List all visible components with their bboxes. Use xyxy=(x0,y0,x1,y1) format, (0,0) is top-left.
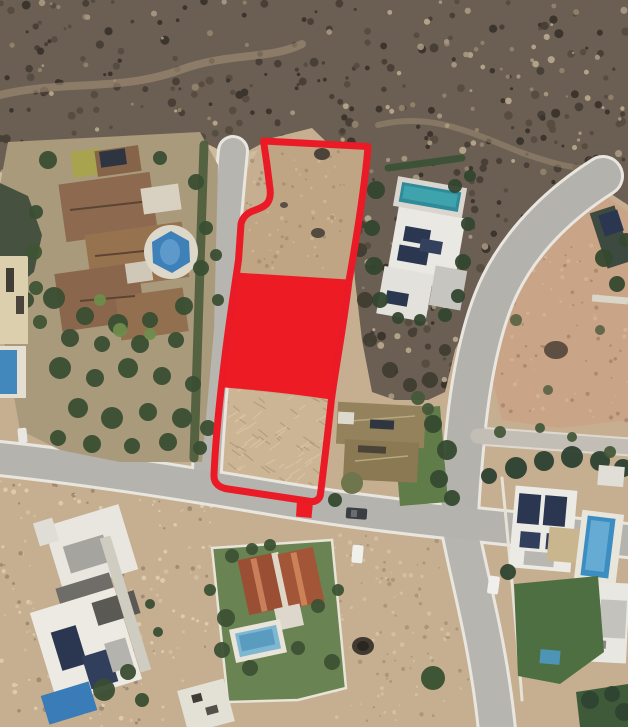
speckle xyxy=(511,126,514,129)
speckle xyxy=(77,107,84,114)
speckle xyxy=(585,360,587,362)
speckle xyxy=(204,510,206,512)
speckle xyxy=(597,30,603,36)
speckle xyxy=(175,565,179,569)
speckle xyxy=(590,279,593,282)
speckle xyxy=(544,34,550,40)
speckle xyxy=(522,323,524,325)
speckle xyxy=(418,587,421,590)
speckle xyxy=(74,494,76,496)
speckle xyxy=(572,52,574,54)
speckle xyxy=(205,575,208,578)
speckle xyxy=(27,73,35,81)
speckle xyxy=(619,350,621,352)
speckle xyxy=(593,316,597,320)
speckle xyxy=(500,68,503,71)
speckle xyxy=(161,37,164,40)
speckle xyxy=(337,99,343,105)
speckle xyxy=(93,107,99,113)
speckle xyxy=(172,56,177,61)
tree xyxy=(76,307,94,325)
speckle xyxy=(281,201,283,203)
speckle xyxy=(464,142,470,148)
speckle xyxy=(570,398,574,402)
speckle xyxy=(427,140,432,145)
speckle xyxy=(326,29,332,35)
speckle xyxy=(257,259,261,263)
speckle xyxy=(206,77,214,85)
speckle xyxy=(207,30,213,36)
speckle xyxy=(596,337,600,341)
speckle xyxy=(48,39,52,43)
speckle xyxy=(38,68,42,72)
speckle xyxy=(11,489,16,494)
speckle xyxy=(285,236,289,240)
speckle xyxy=(424,625,429,630)
speckle xyxy=(324,175,327,178)
speckle xyxy=(405,318,413,326)
tree xyxy=(113,323,127,337)
speckle xyxy=(435,539,440,544)
speckle xyxy=(458,669,462,673)
tree xyxy=(217,609,235,627)
speckle xyxy=(377,695,380,698)
speckle xyxy=(339,600,342,603)
speckle xyxy=(177,108,181,112)
speckle xyxy=(429,656,432,659)
speckle xyxy=(467,678,469,680)
speckle xyxy=(44,42,48,46)
speckle xyxy=(2,569,6,573)
speckle xyxy=(476,176,483,183)
speckle xyxy=(29,601,33,605)
speckle xyxy=(532,61,539,68)
speckle xyxy=(150,641,153,644)
plot-dark-spot-1 xyxy=(314,148,330,160)
speckle xyxy=(542,283,544,285)
tree xyxy=(214,642,230,658)
speckle xyxy=(275,120,281,126)
speckle xyxy=(489,25,497,33)
speckle xyxy=(442,377,447,382)
speckle xyxy=(480,65,485,70)
tree xyxy=(204,584,216,596)
speckle xyxy=(379,715,381,717)
speckle xyxy=(191,617,194,620)
speckle xyxy=(252,151,255,154)
speckle xyxy=(337,150,340,153)
tree xyxy=(210,249,222,261)
speckle xyxy=(372,328,375,331)
speckle xyxy=(427,653,429,655)
speckle xyxy=(411,656,413,658)
speckle xyxy=(585,392,589,396)
speckle xyxy=(329,94,334,99)
speckle xyxy=(314,246,317,249)
speckle xyxy=(566,259,570,263)
speckle xyxy=(330,215,334,219)
speckle xyxy=(582,143,588,149)
speckle xyxy=(524,162,530,168)
speckle xyxy=(406,347,412,353)
speckle xyxy=(377,342,384,349)
speckle xyxy=(444,39,449,44)
speckle xyxy=(152,504,154,506)
speckle xyxy=(584,277,588,281)
speckle xyxy=(29,565,31,567)
solar-panels xyxy=(543,495,568,527)
speckle xyxy=(449,13,455,19)
speckle xyxy=(530,87,534,91)
speckle xyxy=(153,500,156,503)
speckle xyxy=(164,569,169,574)
speckle xyxy=(385,673,389,677)
speckle xyxy=(315,10,318,13)
speckle xyxy=(27,108,31,112)
speckle xyxy=(204,646,206,648)
speckle xyxy=(402,84,406,88)
speckle xyxy=(4,564,6,566)
speckle xyxy=(510,335,513,338)
speckle xyxy=(310,237,313,240)
speckle xyxy=(603,75,608,80)
tree xyxy=(68,398,88,418)
speckle xyxy=(4,75,9,80)
speckle xyxy=(416,685,419,688)
tree xyxy=(439,344,451,356)
speckle xyxy=(323,200,327,204)
speckle xyxy=(500,98,505,103)
speckle xyxy=(180,510,182,512)
speckle xyxy=(585,95,591,101)
tree xyxy=(246,543,258,555)
speckle xyxy=(83,62,88,67)
speckle xyxy=(207,117,211,121)
speckle xyxy=(551,109,560,118)
speckle xyxy=(172,78,180,86)
speckle xyxy=(151,11,157,17)
speckle xyxy=(377,332,386,341)
speckle xyxy=(480,41,484,45)
speckle xyxy=(386,678,388,680)
speckle xyxy=(611,377,613,379)
speckle xyxy=(99,713,101,715)
speckle xyxy=(457,84,465,92)
speckle xyxy=(622,158,626,162)
speckle xyxy=(620,106,624,110)
speckle xyxy=(263,258,265,260)
speckle xyxy=(567,335,571,339)
speckle xyxy=(50,2,53,5)
speckle xyxy=(7,7,14,14)
speckle xyxy=(245,43,249,47)
speckle xyxy=(26,30,29,33)
tree xyxy=(144,328,156,340)
speckle xyxy=(310,58,319,67)
speckle xyxy=(348,540,352,544)
dirt-hole-bottom-lot-inner xyxy=(357,641,369,651)
plot-dark-spot-3 xyxy=(280,202,288,208)
speckle xyxy=(33,633,36,636)
speckle xyxy=(161,718,164,721)
speckle xyxy=(443,357,446,360)
speckle xyxy=(174,109,177,112)
speckle xyxy=(444,621,448,625)
tree xyxy=(291,641,305,655)
speckle xyxy=(298,225,301,228)
speckle xyxy=(17,600,21,604)
jacuzzi-se xyxy=(539,649,560,665)
speckle xyxy=(394,660,396,662)
speckle xyxy=(101,704,104,707)
speckle xyxy=(615,150,622,157)
speckle xyxy=(391,578,395,582)
speckle xyxy=(561,145,564,148)
speckle xyxy=(394,333,400,339)
speckle xyxy=(471,199,475,203)
speckle xyxy=(68,112,76,120)
speckle xyxy=(559,68,564,73)
speckle xyxy=(181,614,185,618)
speckle xyxy=(34,638,36,640)
tree xyxy=(153,627,163,637)
speckle xyxy=(480,142,485,147)
speckle xyxy=(274,60,282,68)
speckle xyxy=(401,667,405,671)
speckle xyxy=(339,184,341,186)
speckle xyxy=(194,575,199,580)
speckle xyxy=(18,502,20,504)
speckle xyxy=(376,673,379,676)
speckle xyxy=(616,412,620,416)
speckle xyxy=(381,87,386,92)
speckle xyxy=(334,546,336,548)
speckle xyxy=(422,562,425,565)
speckle xyxy=(505,98,512,105)
speckle xyxy=(431,321,435,325)
speckle xyxy=(389,109,394,114)
speckle xyxy=(438,567,440,569)
speckle xyxy=(364,28,371,35)
speckle xyxy=(412,632,414,634)
speckle xyxy=(332,185,335,188)
speckle xyxy=(209,102,213,106)
speckle xyxy=(620,112,625,117)
speckle xyxy=(575,103,584,112)
speckle xyxy=(338,533,342,537)
speckle xyxy=(365,535,367,537)
tree xyxy=(311,599,325,613)
tree xyxy=(364,220,380,236)
villa-nw-terrace xyxy=(140,183,181,214)
speckle xyxy=(310,187,313,190)
speckle xyxy=(277,229,279,231)
speckle xyxy=(172,609,175,612)
speckle xyxy=(205,622,209,626)
solar-panels xyxy=(519,531,540,549)
speckle xyxy=(499,24,504,29)
speckle xyxy=(190,572,192,574)
speckle xyxy=(543,258,545,260)
speckle xyxy=(529,410,531,412)
speckle xyxy=(510,47,515,52)
speckle xyxy=(571,290,575,294)
speckle xyxy=(271,261,273,263)
speckle xyxy=(111,0,115,4)
speckle xyxy=(387,10,392,15)
speckle xyxy=(354,8,357,11)
solar-water-heater xyxy=(370,419,394,429)
speckle xyxy=(381,59,387,65)
speckle xyxy=(400,642,405,647)
speckle xyxy=(566,95,568,97)
speckle xyxy=(29,630,31,632)
speckle xyxy=(594,269,598,273)
speckle xyxy=(549,261,551,263)
speckle xyxy=(141,566,145,570)
speckle xyxy=(213,121,218,126)
speckle xyxy=(12,690,17,695)
speckle xyxy=(380,686,384,690)
speckle xyxy=(91,91,98,98)
speckle xyxy=(176,18,180,22)
speckle xyxy=(471,107,475,111)
speckle xyxy=(417,43,424,50)
plot-dark-spot-2 xyxy=(311,228,325,238)
speckle xyxy=(618,117,621,120)
speckle xyxy=(20,517,22,519)
speckle xyxy=(3,487,8,492)
tree xyxy=(534,451,554,471)
speckle xyxy=(4,614,6,616)
speckle xyxy=(379,631,382,634)
speckle xyxy=(77,499,81,503)
speckle xyxy=(253,180,256,183)
speckle xyxy=(482,243,489,250)
speckle xyxy=(443,700,445,702)
speckle xyxy=(292,241,294,243)
speckle xyxy=(526,311,529,314)
speckle xyxy=(551,4,556,9)
speckle xyxy=(315,254,318,257)
speckle xyxy=(389,680,392,683)
speckle xyxy=(468,235,472,239)
tree xyxy=(124,438,140,454)
speckle xyxy=(608,95,614,101)
speckle xyxy=(569,306,571,308)
speckle xyxy=(255,58,262,65)
speckle xyxy=(469,89,472,92)
speckle xyxy=(410,102,415,107)
speckle xyxy=(579,260,581,262)
speckle xyxy=(297,83,300,86)
speckle xyxy=(96,41,104,49)
speckle xyxy=(381,577,383,579)
round-tree-bottom-lot xyxy=(421,666,445,690)
speckle xyxy=(361,582,363,584)
speckle xyxy=(623,328,627,332)
speckle xyxy=(303,62,307,66)
speckle xyxy=(392,650,396,654)
speckle xyxy=(554,29,563,38)
speckle xyxy=(506,74,510,78)
speckle xyxy=(443,638,447,642)
speckle xyxy=(266,108,272,114)
speckle xyxy=(547,120,556,129)
speckle xyxy=(399,704,401,706)
speckle xyxy=(162,706,165,709)
plot-highlight-fill xyxy=(225,273,349,400)
speckle xyxy=(363,559,366,562)
speckle xyxy=(622,335,626,339)
speckle xyxy=(55,484,58,487)
tree xyxy=(382,362,398,378)
speckle xyxy=(212,130,219,137)
speckle xyxy=(168,98,177,107)
speckle xyxy=(382,568,386,572)
speckle xyxy=(350,563,353,566)
speckle xyxy=(609,359,613,363)
speckle xyxy=(548,56,555,63)
speckle xyxy=(542,313,546,317)
tree xyxy=(264,539,276,551)
speckle xyxy=(448,36,453,41)
speckle xyxy=(369,169,373,173)
speckle xyxy=(268,233,271,236)
speckle xyxy=(17,709,21,713)
round-tree-olive xyxy=(341,472,363,494)
speckle xyxy=(509,409,513,413)
speckle xyxy=(476,264,485,273)
speckle xyxy=(18,483,21,486)
speckle xyxy=(202,546,205,549)
speckle xyxy=(358,660,362,664)
tree xyxy=(505,457,527,479)
speckle xyxy=(415,593,419,597)
speckle xyxy=(141,576,146,581)
speckle xyxy=(153,652,156,655)
speckle xyxy=(576,325,578,327)
tree xyxy=(392,312,404,324)
speckle xyxy=(1,545,4,548)
speckle xyxy=(609,344,611,346)
speckle xyxy=(280,245,284,249)
speckle xyxy=(139,499,142,502)
tree xyxy=(424,415,442,433)
speckle xyxy=(276,250,280,254)
speckle xyxy=(585,47,588,50)
tree xyxy=(481,468,497,484)
speckle xyxy=(339,230,341,232)
speckle xyxy=(250,84,253,87)
speckle xyxy=(64,27,67,30)
speckle xyxy=(317,79,320,82)
speckle xyxy=(282,182,286,186)
swimming-pool-nw-light xyxy=(160,239,180,265)
speckle xyxy=(188,546,191,549)
speckle xyxy=(173,523,177,527)
tree xyxy=(535,423,545,433)
speckle xyxy=(394,614,396,616)
speckle xyxy=(140,105,143,108)
speckle xyxy=(540,135,546,141)
speckle xyxy=(424,136,428,140)
speckle xyxy=(34,707,38,711)
speckle xyxy=(391,611,394,614)
speckle xyxy=(18,551,22,555)
speckle xyxy=(471,206,478,213)
speckle xyxy=(12,683,16,687)
